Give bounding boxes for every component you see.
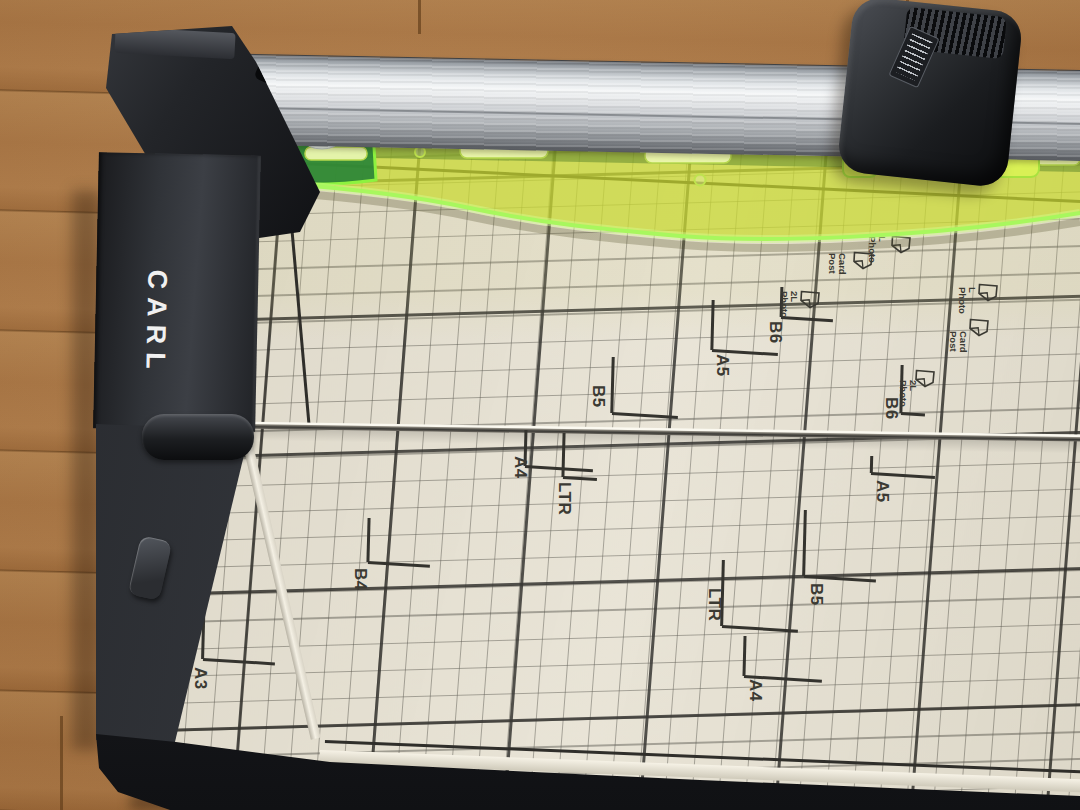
photo-of-paper-trimmer: B5A5B6A4LTRB4A3LTRA4B5A5B6Photo2LPostCar…: [0, 0, 1080, 810]
guide-hole: [695, 175, 706, 186]
guide-foot: [305, 147, 367, 160]
hinge-knuckle: [142, 414, 254, 460]
base-arm: CARL: [93, 152, 261, 431]
guide-hole: [415, 147, 425, 157]
carl-logo: CARL: [139, 269, 172, 377]
